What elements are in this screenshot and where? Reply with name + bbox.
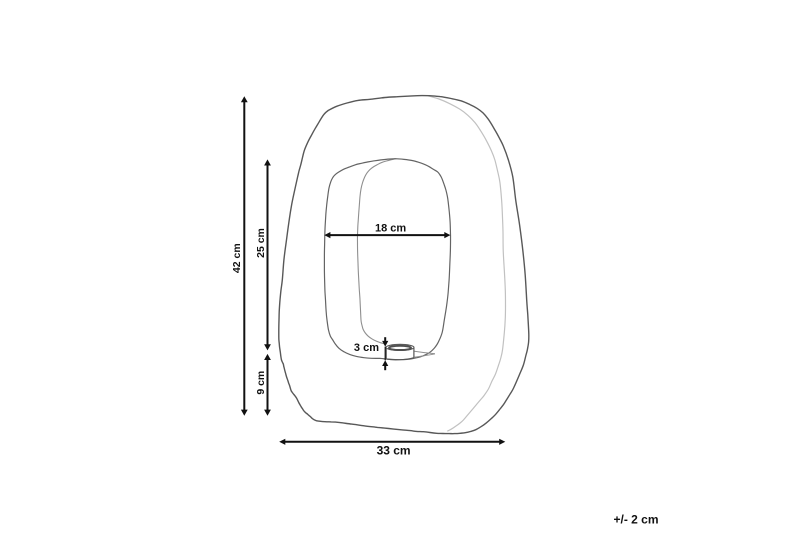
svg-text:18 cm: 18 cm [375, 222, 406, 234]
svg-text:25 cm: 25 cm [255, 228, 267, 258]
svg-text:+/- 2 cm: +/- 2 cm [613, 513, 658, 527]
svg-text:33 cm: 33 cm [377, 444, 411, 458]
svg-text:42 cm: 42 cm [231, 243, 243, 273]
svg-text:9 cm: 9 cm [255, 371, 267, 395]
svg-text:3 cm: 3 cm [354, 342, 379, 354]
